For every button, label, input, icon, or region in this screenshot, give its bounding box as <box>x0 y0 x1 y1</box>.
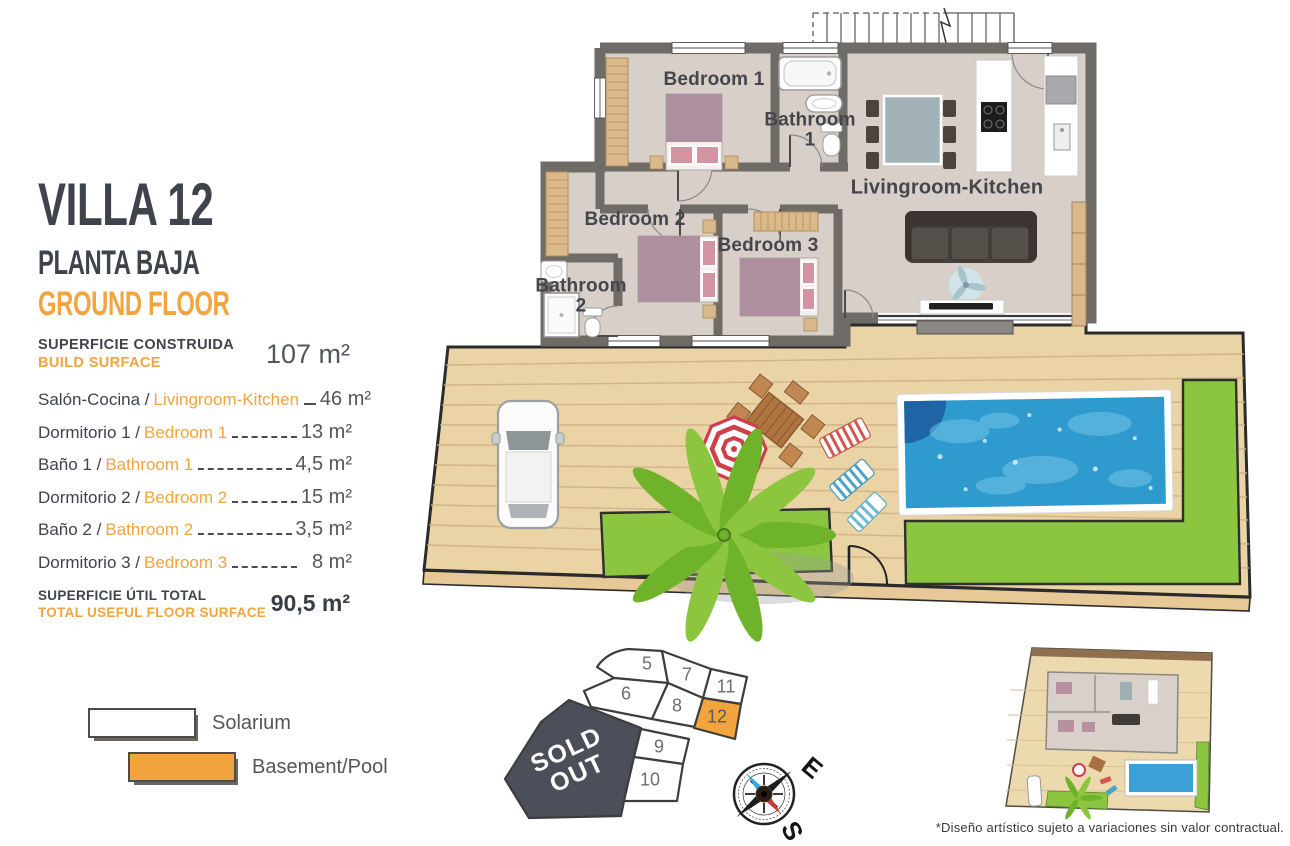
legend-item-solarium: Solarium <box>88 708 291 738</box>
plot-number-8: 8 <box>672 696 682 717</box>
plot-number-9: 9 <box>654 737 664 758</box>
total-label-es: SUPERFICIE ÚTIL TOTAL <box>38 588 266 603</box>
room-label-bedroom2: Bedroom 2 <box>584 210 685 230</box>
dotted-leader <box>232 501 297 503</box>
build-surface-block: SUPERFICIE CONSTRUIDA BUILD SURFACE 107 … <box>38 337 352 371</box>
porch-step <box>917 321 1013 334</box>
total-label-en: TOTAL USEFUL FLOOR SURFACE <box>38 605 266 620</box>
plot-number-6: 6 <box>621 684 631 705</box>
info-panel: VILLA 12 PLANTA BAJA GROUND FLOOR SUPERF… <box>38 176 352 620</box>
pool <box>897 390 1173 516</box>
plot-number-12: 12 <box>707 707 727 728</box>
floorplan-page: VILLA 12 PLANTA BAJA GROUND FLOOR SUPERF… <box>0 0 1290 840</box>
room-label-bedroom3: Bedroom 3 <box>717 236 818 256</box>
dotted-leader <box>232 566 297 568</box>
stairs-icon <box>813 8 1014 47</box>
legend-item-basement-pool: Basement/Pool <box>128 752 388 782</box>
room-area-list: Salón-Cocina /Livingroom-Kitchen46 m² Do… <box>38 388 352 574</box>
room-row: Baño 1 /Bathroom 14,5 m² <box>38 453 352 476</box>
tv-console-icon <box>920 300 1004 314</box>
mini-plan <box>1006 648 1212 821</box>
plot-number-7: 7 <box>682 665 692 686</box>
room-row: Dormitorio 1 /Bedroom 113 m² <box>38 421 352 444</box>
sofa-icon <box>905 211 1037 263</box>
room-label-bathroom2: Bathroom 2 <box>535 276 626 316</box>
plot-number-5: 5 <box>642 654 652 675</box>
kitchen-island <box>976 60 1012 172</box>
compass-icon <box>734 764 795 824</box>
subtitle-spanish: PLANTA BAJA <box>38 246 352 280</box>
dotted-leader <box>232 436 297 438</box>
bathtub-icon <box>779 57 841 90</box>
build-surface-label-en: BUILD SURFACE <box>38 355 234 371</box>
build-surface-label-es: SUPERFICIE CONSTRUIDA <box>38 337 234 353</box>
plot-5 <box>597 649 668 683</box>
room-row: Dormitorio 2 /Bedroom 215 m² <box>38 486 352 509</box>
basement-pool-swatch <box>128 752 236 782</box>
subtitle-english: GROUND FLOOR <box>38 287 352 321</box>
room-row: Dormitorio 3 /Bedroom 38 m² <box>38 551 352 574</box>
solarium-swatch <box>88 708 196 738</box>
dotted-leader <box>198 468 292 470</box>
total-value: 90,5 m² <box>271 590 352 617</box>
room-row: Salón-Cocina /Livingroom-Kitchen46 m² <box>38 388 352 411</box>
sideboard <box>1072 202 1086 326</box>
room-label-livingroom-kitchen: Livingroom-Kitchen <box>851 178 1044 199</box>
total-surface-block: SUPERFICIE ÚTIL TOTAL TOTAL USEFUL FLOOR… <box>38 588 352 620</box>
room-label-bathroom1: Bathroom 1 <box>764 110 855 150</box>
room-label-bedroom1: Bedroom 1 <box>663 70 764 90</box>
page-title: VILLA 12 <box>38 176 352 233</box>
kitchen-counter <box>1044 56 1078 176</box>
room-row: Baño 2 /Bathroom 23,5 m² <box>38 518 352 541</box>
car-icon <box>492 401 564 528</box>
dotted-leader <box>198 533 292 535</box>
dotted-leader <box>304 403 316 405</box>
disclaimer-text: *Diseño artístico sujeto a variaciones s… <box>936 820 1284 835</box>
site-plan <box>505 649 747 818</box>
plot-number-11: 11 <box>717 677 736 698</box>
plot-number-10: 10 <box>640 770 660 791</box>
build-surface-value: 107 m² <box>266 339 352 370</box>
